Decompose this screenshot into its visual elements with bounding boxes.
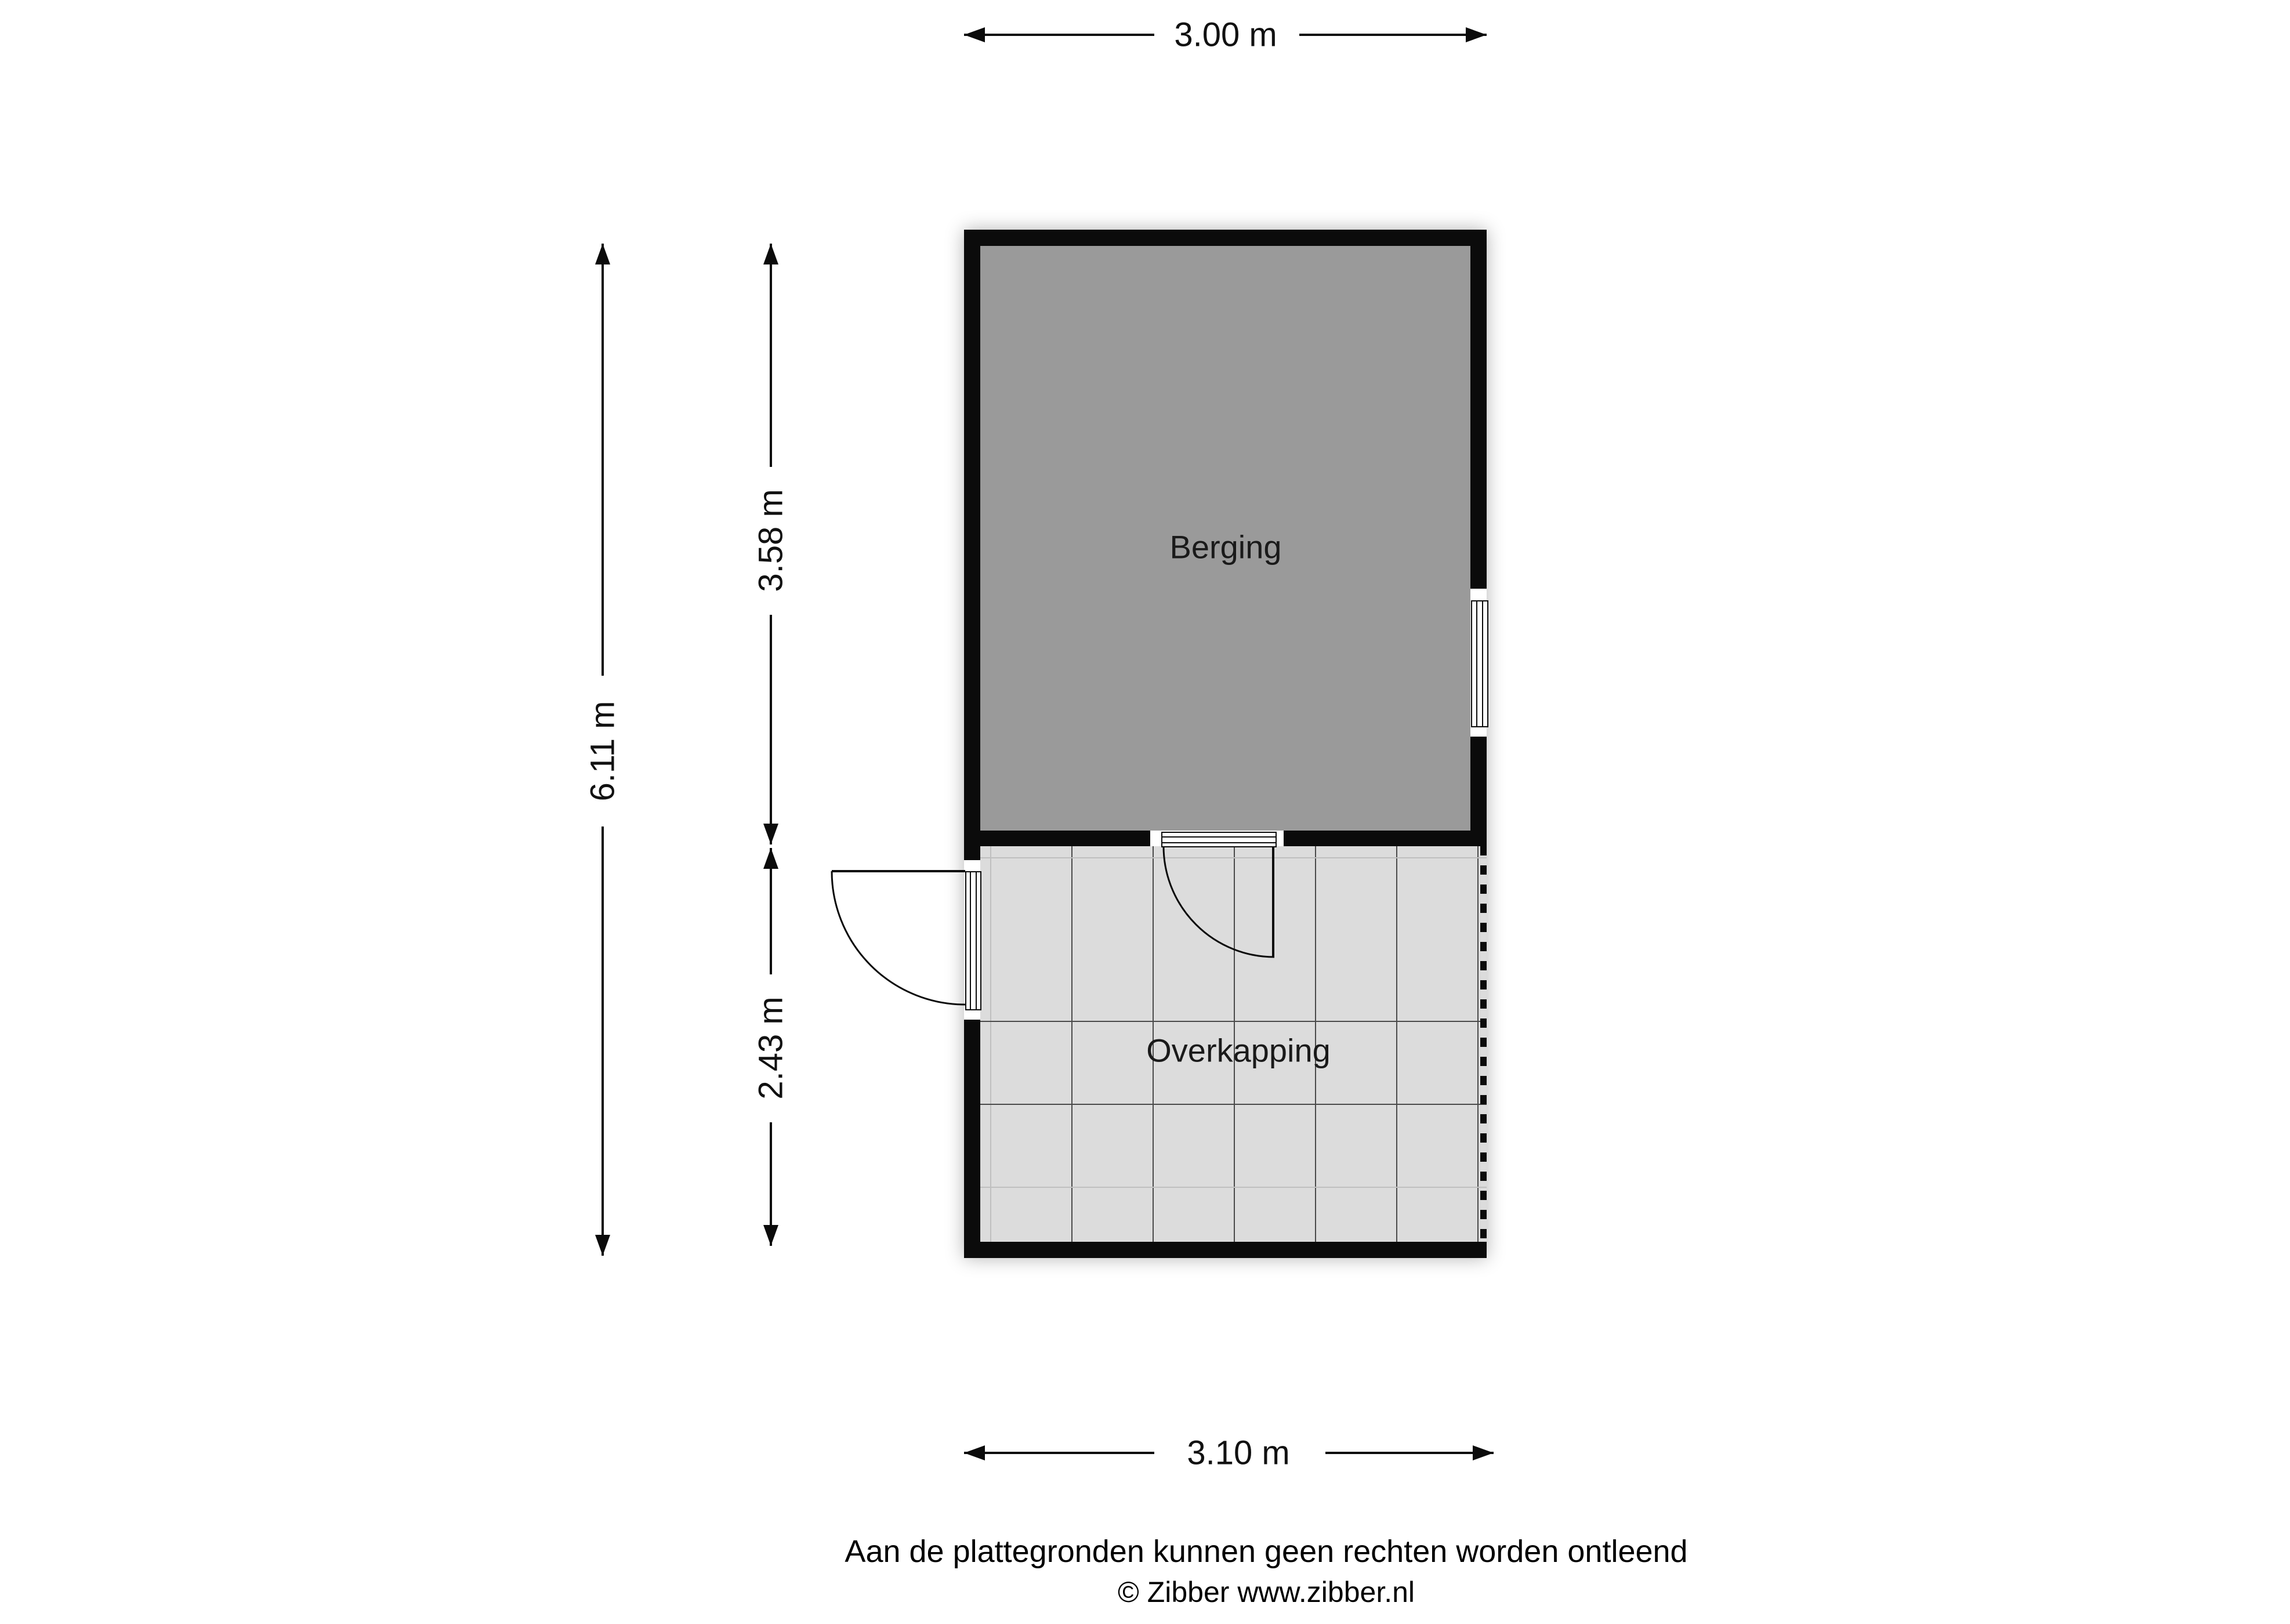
arrowhead-right-icon [1473,1445,1494,1460]
dimension-label-bottom-width: 3.10 m [1187,1434,1289,1473]
dimension-line [602,244,604,676]
door-glass-lines [1162,836,1276,843]
dimension-line [1325,1452,1494,1454]
window-glass-lines [1476,601,1483,726]
dimension-line [770,615,772,844]
floor-plan-page: { "rooms": { "berging": "Berging", "over… [0,0,2290,1624]
dimension-line [770,244,772,467]
wall-right [1470,230,1487,846]
dimension-line [602,826,604,1256]
dimension-line [964,1452,1154,1454]
wall-bottom [964,1242,1487,1258]
tile-grid-line [1396,846,1397,1242]
room-label-overkapping: Overkapping [1146,1032,1331,1070]
footer-copyright: © Zibber www.zibber.nl [1118,1575,1415,1609]
tile-grid-line [1477,846,1479,1242]
arrowhead-down-icon [595,1235,610,1256]
tile-grid-line [990,846,991,1242]
arrowhead-down-icon [763,824,778,844]
door-glass-lines [970,872,977,1009]
footer-disclaimer: Aan de plattegronden kunnen geen rechten… [845,1534,1687,1569]
wall-left [964,230,980,1258]
window-symbol [1471,600,1488,727]
dimension-line [770,848,772,974]
building-outline: Berging Overkapping [964,230,1487,1258]
tile-grid-line [980,1104,1487,1105]
arrowhead-down-icon [763,1225,778,1246]
open-edge-dashed-line [1480,846,1487,1242]
middle-door-symbol [1161,832,1277,847]
dimension-line [964,34,1154,36]
tile-grid-line [980,1021,1487,1022]
wall-top [964,230,1487,246]
dimension-label-total-height: 6.11 m [584,701,622,801]
tile-grid-line [1071,846,1072,1242]
arrowhead-left-icon [964,27,985,42]
left-door-symbol [965,871,981,1010]
left-door-swing-arc [832,871,965,1005]
arrowhead-left-icon [964,1445,985,1460]
room-label-berging: Berging [1169,528,1281,566]
tile-grid-line [980,1187,1487,1188]
dimension-label-berging-height: 3.58 m [752,489,791,592]
arrowhead-right-icon [1466,27,1487,42]
dimension-label-overkapping-height: 2.43 m [752,996,791,1099]
dimension-line [1299,34,1487,36]
dimension-label-top-width: 3.00 m [1174,16,1277,55]
middle-door-swing-arc [1164,846,1274,957]
